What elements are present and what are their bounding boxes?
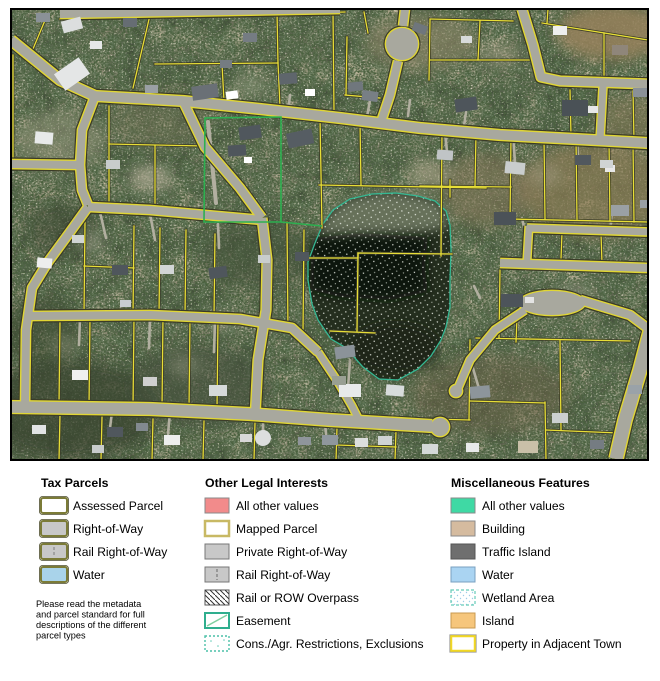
svg-text:All other values: All other values bbox=[482, 499, 565, 513]
svg-text:Private Right-of-Way: Private Right-of-Way bbox=[236, 545, 348, 559]
svg-text:Please read the metadata: Please read the metadata bbox=[36, 599, 142, 609]
svg-text:Traffic Island: Traffic Island bbox=[482, 545, 551, 559]
svg-text:Water: Water bbox=[73, 568, 105, 582]
svg-text:Other Legal Interests: Other Legal Interests bbox=[205, 476, 328, 490]
svg-text:Assessed Parcel: Assessed Parcel bbox=[73, 499, 163, 513]
svg-text:Rail Right-of-Way: Rail Right-of-Way bbox=[73, 545, 168, 559]
svg-text:Rail Right-of-Way: Rail Right-of-Way bbox=[236, 568, 331, 582]
svg-text:and parcel standard for full: and parcel standard for full bbox=[36, 610, 145, 620]
svg-text:Mapped Parcel: Mapped Parcel bbox=[236, 522, 317, 536]
svg-text:Wetland Area: Wetland Area bbox=[482, 591, 555, 605]
svg-text:parcel types: parcel types bbox=[36, 631, 86, 641]
svg-text:All other values: All other values bbox=[236, 499, 319, 513]
svg-text:Cons./Agr. Restrictions, Exclu: Cons./Agr. Restrictions, Exclusions bbox=[236, 637, 424, 651]
svg-text:Miscellaneous Features: Miscellaneous Features bbox=[451, 476, 590, 490]
svg-text:Right-of-Way: Right-of-Way bbox=[73, 522, 144, 536]
svg-text:Rail or ROW Overpass: Rail or ROW Overpass bbox=[236, 591, 359, 605]
svg-text:descriptions of the different: descriptions of the different bbox=[36, 620, 147, 630]
svg-text:Island: Island bbox=[482, 614, 514, 628]
svg-text:Water: Water bbox=[482, 568, 514, 582]
svg-text:Easement: Easement bbox=[236, 614, 291, 628]
svg-text:Building: Building bbox=[482, 522, 525, 536]
svg-text:Property in Adjacent Town: Property in Adjacent Town bbox=[482, 637, 622, 651]
svg-text:Tax Parcels: Tax Parcels bbox=[41, 476, 109, 490]
